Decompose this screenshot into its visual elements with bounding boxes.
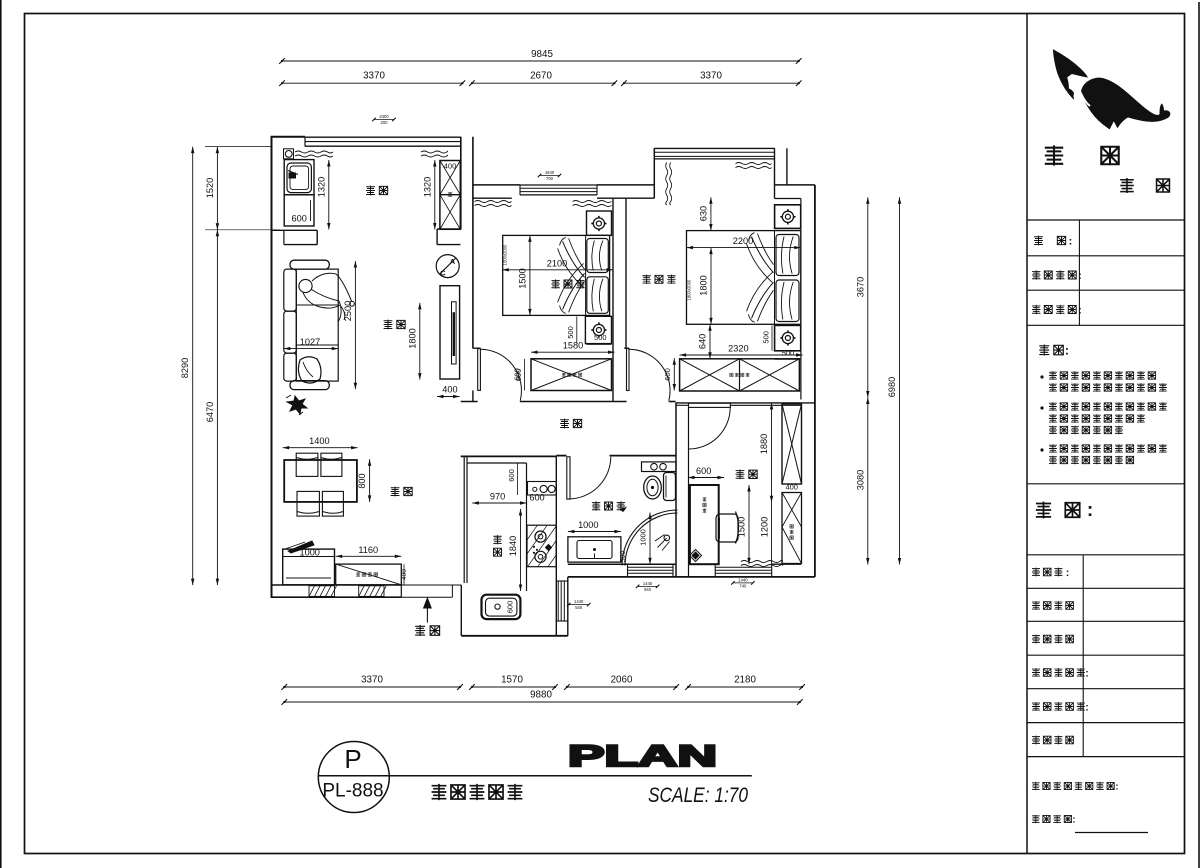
svg-text:3080: 3080 <box>855 470 865 490</box>
svg-text:1000: 1000 <box>639 529 648 546</box>
svg-text:640: 640 <box>698 334 708 349</box>
svg-text:1570: 1570 <box>501 675 523 686</box>
svg-text::: : <box>1078 305 1082 317</box>
svg-text:1200: 1200 <box>759 517 769 537</box>
svg-text:1800: 1800 <box>699 275 709 295</box>
svg-text::: : <box>1078 270 1082 282</box>
svg-text:3370: 3370 <box>700 71 722 82</box>
svg-text:1440: 1440 <box>643 581 653 586</box>
svg-text:1800x2000: 1800x2000 <box>687 279 692 300</box>
svg-text:600: 600 <box>507 469 516 482</box>
svg-text:1320: 1320 <box>316 177 326 197</box>
svg-text::: : <box>1069 236 1073 248</box>
svg-text::: : <box>1085 703 1088 714</box>
svg-text:1400: 1400 <box>309 436 329 446</box>
svg-text:400: 400 <box>444 162 457 171</box>
svg-text:P: P <box>344 744 361 774</box>
svg-text:700: 700 <box>546 176 554 181</box>
svg-text:9880: 9880 <box>530 690 552 701</box>
svg-text:400: 400 <box>442 384 457 394</box>
svg-text:970: 970 <box>490 491 505 501</box>
svg-text:500: 500 <box>762 331 771 344</box>
svg-text:1500: 1500 <box>737 517 747 537</box>
svg-text:500: 500 <box>594 333 607 342</box>
svg-text:2060: 2060 <box>611 675 633 686</box>
svg-text:600: 600 <box>696 466 711 476</box>
svg-text:2320: 2320 <box>728 343 748 353</box>
svg-text::: : <box>1115 782 1118 793</box>
svg-text:6470: 6470 <box>205 402 215 422</box>
svg-text:2300: 2300 <box>379 114 389 119</box>
svg-text:200: 200 <box>381 120 389 125</box>
svg-text:PL-888: PL-888 <box>322 781 383 802</box>
svg-text:940: 940 <box>644 587 652 592</box>
svg-text:2670: 2670 <box>530 71 552 82</box>
svg-text:1500: 1500 <box>518 268 528 288</box>
svg-text:1320: 1320 <box>422 177 432 197</box>
svg-text:C: C <box>440 269 446 278</box>
svg-text:1027: 1027 <box>300 337 320 347</box>
svg-text:2180: 2180 <box>734 675 756 686</box>
svg-text:6980: 6980 <box>887 377 897 397</box>
svg-text::: : <box>1072 815 1075 826</box>
svg-text:1880: 1880 <box>759 434 769 454</box>
svg-text:600: 600 <box>513 368 522 381</box>
svg-text:600: 600 <box>663 368 672 381</box>
svg-text:800: 800 <box>357 473 367 488</box>
svg-text:1840: 1840 <box>508 536 518 556</box>
svg-text:1000: 1000 <box>578 520 598 530</box>
svg-text:1520: 1520 <box>205 178 215 198</box>
svg-text:1440: 1440 <box>738 577 748 582</box>
svg-text:1500x2000: 1500x2000 <box>503 244 508 265</box>
svg-text:A: A <box>450 257 456 266</box>
svg-text:2500: 2500 <box>343 301 353 321</box>
svg-text:630: 630 <box>699 206 709 221</box>
svg-text:1800: 1800 <box>407 328 417 348</box>
svg-text:600: 600 <box>529 492 544 502</box>
svg-text:9845: 9845 <box>531 49 553 60</box>
svg-text:500: 500 <box>782 349 795 358</box>
svg-text::: : <box>1066 568 1069 579</box>
svg-text:1640: 1640 <box>545 170 555 175</box>
svg-text:PLAN: PLAN <box>568 740 717 773</box>
svg-text:SCALE: 1:70: SCALE: 1:70 <box>648 784 748 807</box>
svg-text:540: 540 <box>575 605 583 610</box>
svg-text:600: 600 <box>506 601 515 614</box>
svg-text::: : <box>1087 500 1093 521</box>
svg-text:1160: 1160 <box>358 545 378 555</box>
svg-text:740: 740 <box>739 583 747 588</box>
svg-text:3370: 3370 <box>363 71 385 82</box>
svg-text:600: 600 <box>292 214 307 224</box>
svg-text:400: 400 <box>785 483 798 492</box>
svg-text:2200: 2200 <box>733 236 753 246</box>
svg-text:1580: 1580 <box>563 341 583 351</box>
svg-text:2100: 2100 <box>547 258 567 268</box>
svg-text:8290: 8290 <box>180 358 190 378</box>
svg-text:3670: 3670 <box>855 277 865 297</box>
svg-text:500: 500 <box>566 326 575 339</box>
svg-text::: : <box>1065 344 1069 358</box>
svg-text::: : <box>1085 669 1088 680</box>
svg-text:1440: 1440 <box>574 599 584 604</box>
svg-text:3370: 3370 <box>361 675 383 686</box>
